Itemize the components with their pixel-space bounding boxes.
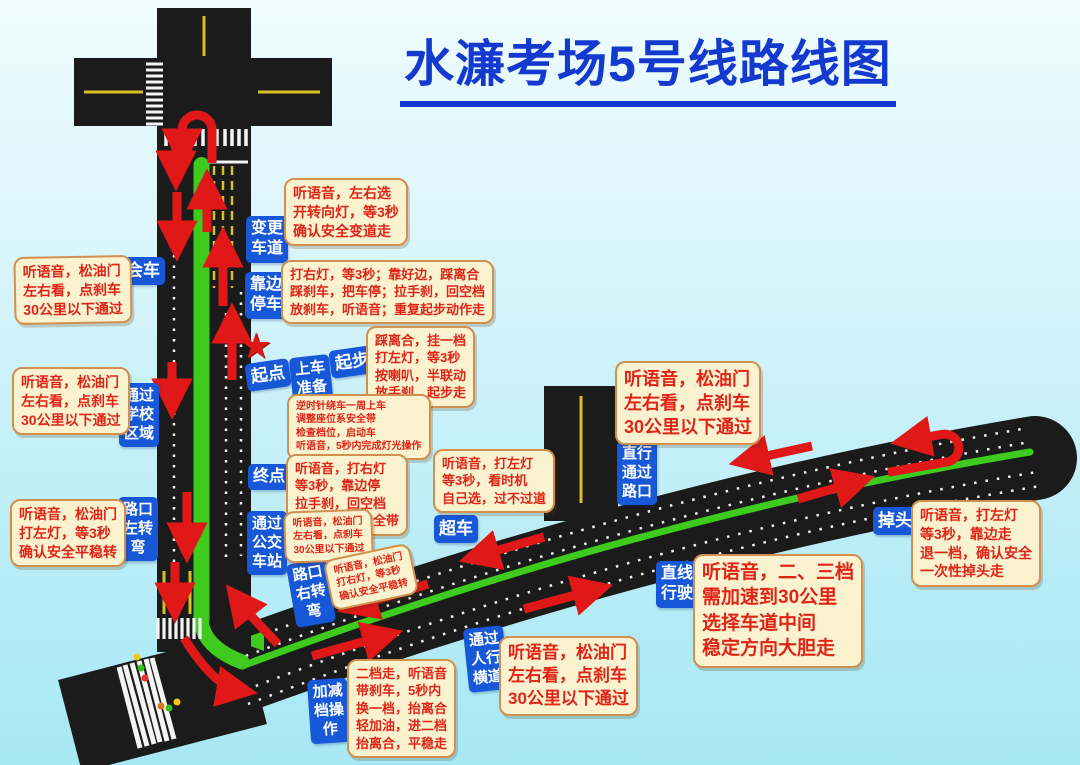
note-zhixing-lukou: 听语音，松油门 左右看，点刹车 30公里以下通过 [615, 361, 761, 445]
page-title: 水濂考场5号线路线图 [400, 24, 896, 107]
note-shangche: 逆时针绕车一周上车 调整座位系安全带 检查档位，启动车 听语音，5秒内完成灯光操… [287, 394, 431, 460]
waypoint-label-gongjiao-chezhan: 通过 公交 车站 [247, 511, 287, 575]
note-jiajiandang: 二档走，听语音 带刹车，5秒内 换一档，抬离合 轻加油，进二档 抬离合，平稳走 [347, 659, 456, 758]
waypoint-label-zhongdian: 终点 [248, 464, 290, 490]
start-star-icon: ★ [240, 328, 272, 364]
note-huiche: 听语音，松油门 左右看，点刹车 30公里以下通过 [13, 255, 132, 325]
note-renxing: 听语音，松油门 左右看，点刹车 30公里以下通过 [499, 636, 638, 716]
waypoint-label-zhixian-xingshi: 直线 行驶 [656, 561, 698, 608]
note-xuexiao: 听语音，松油门 左右看，点刹车 30公里以下通过 [12, 367, 130, 435]
note-biangeng: 听语音，左右选 开转向灯，等3秒 确认安全变道走 [284, 178, 408, 246]
waypoint-label-chaoche: 超车 [434, 515, 478, 543]
note-diaotou: 听语音，打左灯 等3秒，靠边走 退一档，确认安全 一次性掉头走 [911, 500, 1041, 587]
route-map-page: 水濂考场5号线路线图 ★ 会车 变更 车道 靠边 停车 起点 上车 准备 起步 … [0, 0, 1080, 765]
waypoint-label-zhixing-lukou: 直行 通过 路口 [617, 441, 657, 505]
note-kaobian: 打右灯，等3秒；靠好边，踩离合 踩刹车，把车停；拉手刹，回空档 放刹车，听语音；… [281, 260, 494, 324]
note-zuozhuan: 听语音，松油门 打左灯，等3秒 确认安全平稳转 [10, 499, 126, 567]
waypoint-label-biangeng-chedao: 变更 车道 [246, 216, 288, 263]
note-chaoche: 听语音，打左灯 等3秒，看时机 自己选，过不过道 [433, 449, 555, 513]
waypoint-label-jiajiandang: 加减 档操 作 [307, 678, 351, 744]
branch-road [544, 386, 618, 521]
note-zhixian: 听语音，二、三档 需加速到30公里 选择车道中间 稳定方向大胆走 [693, 554, 863, 668]
